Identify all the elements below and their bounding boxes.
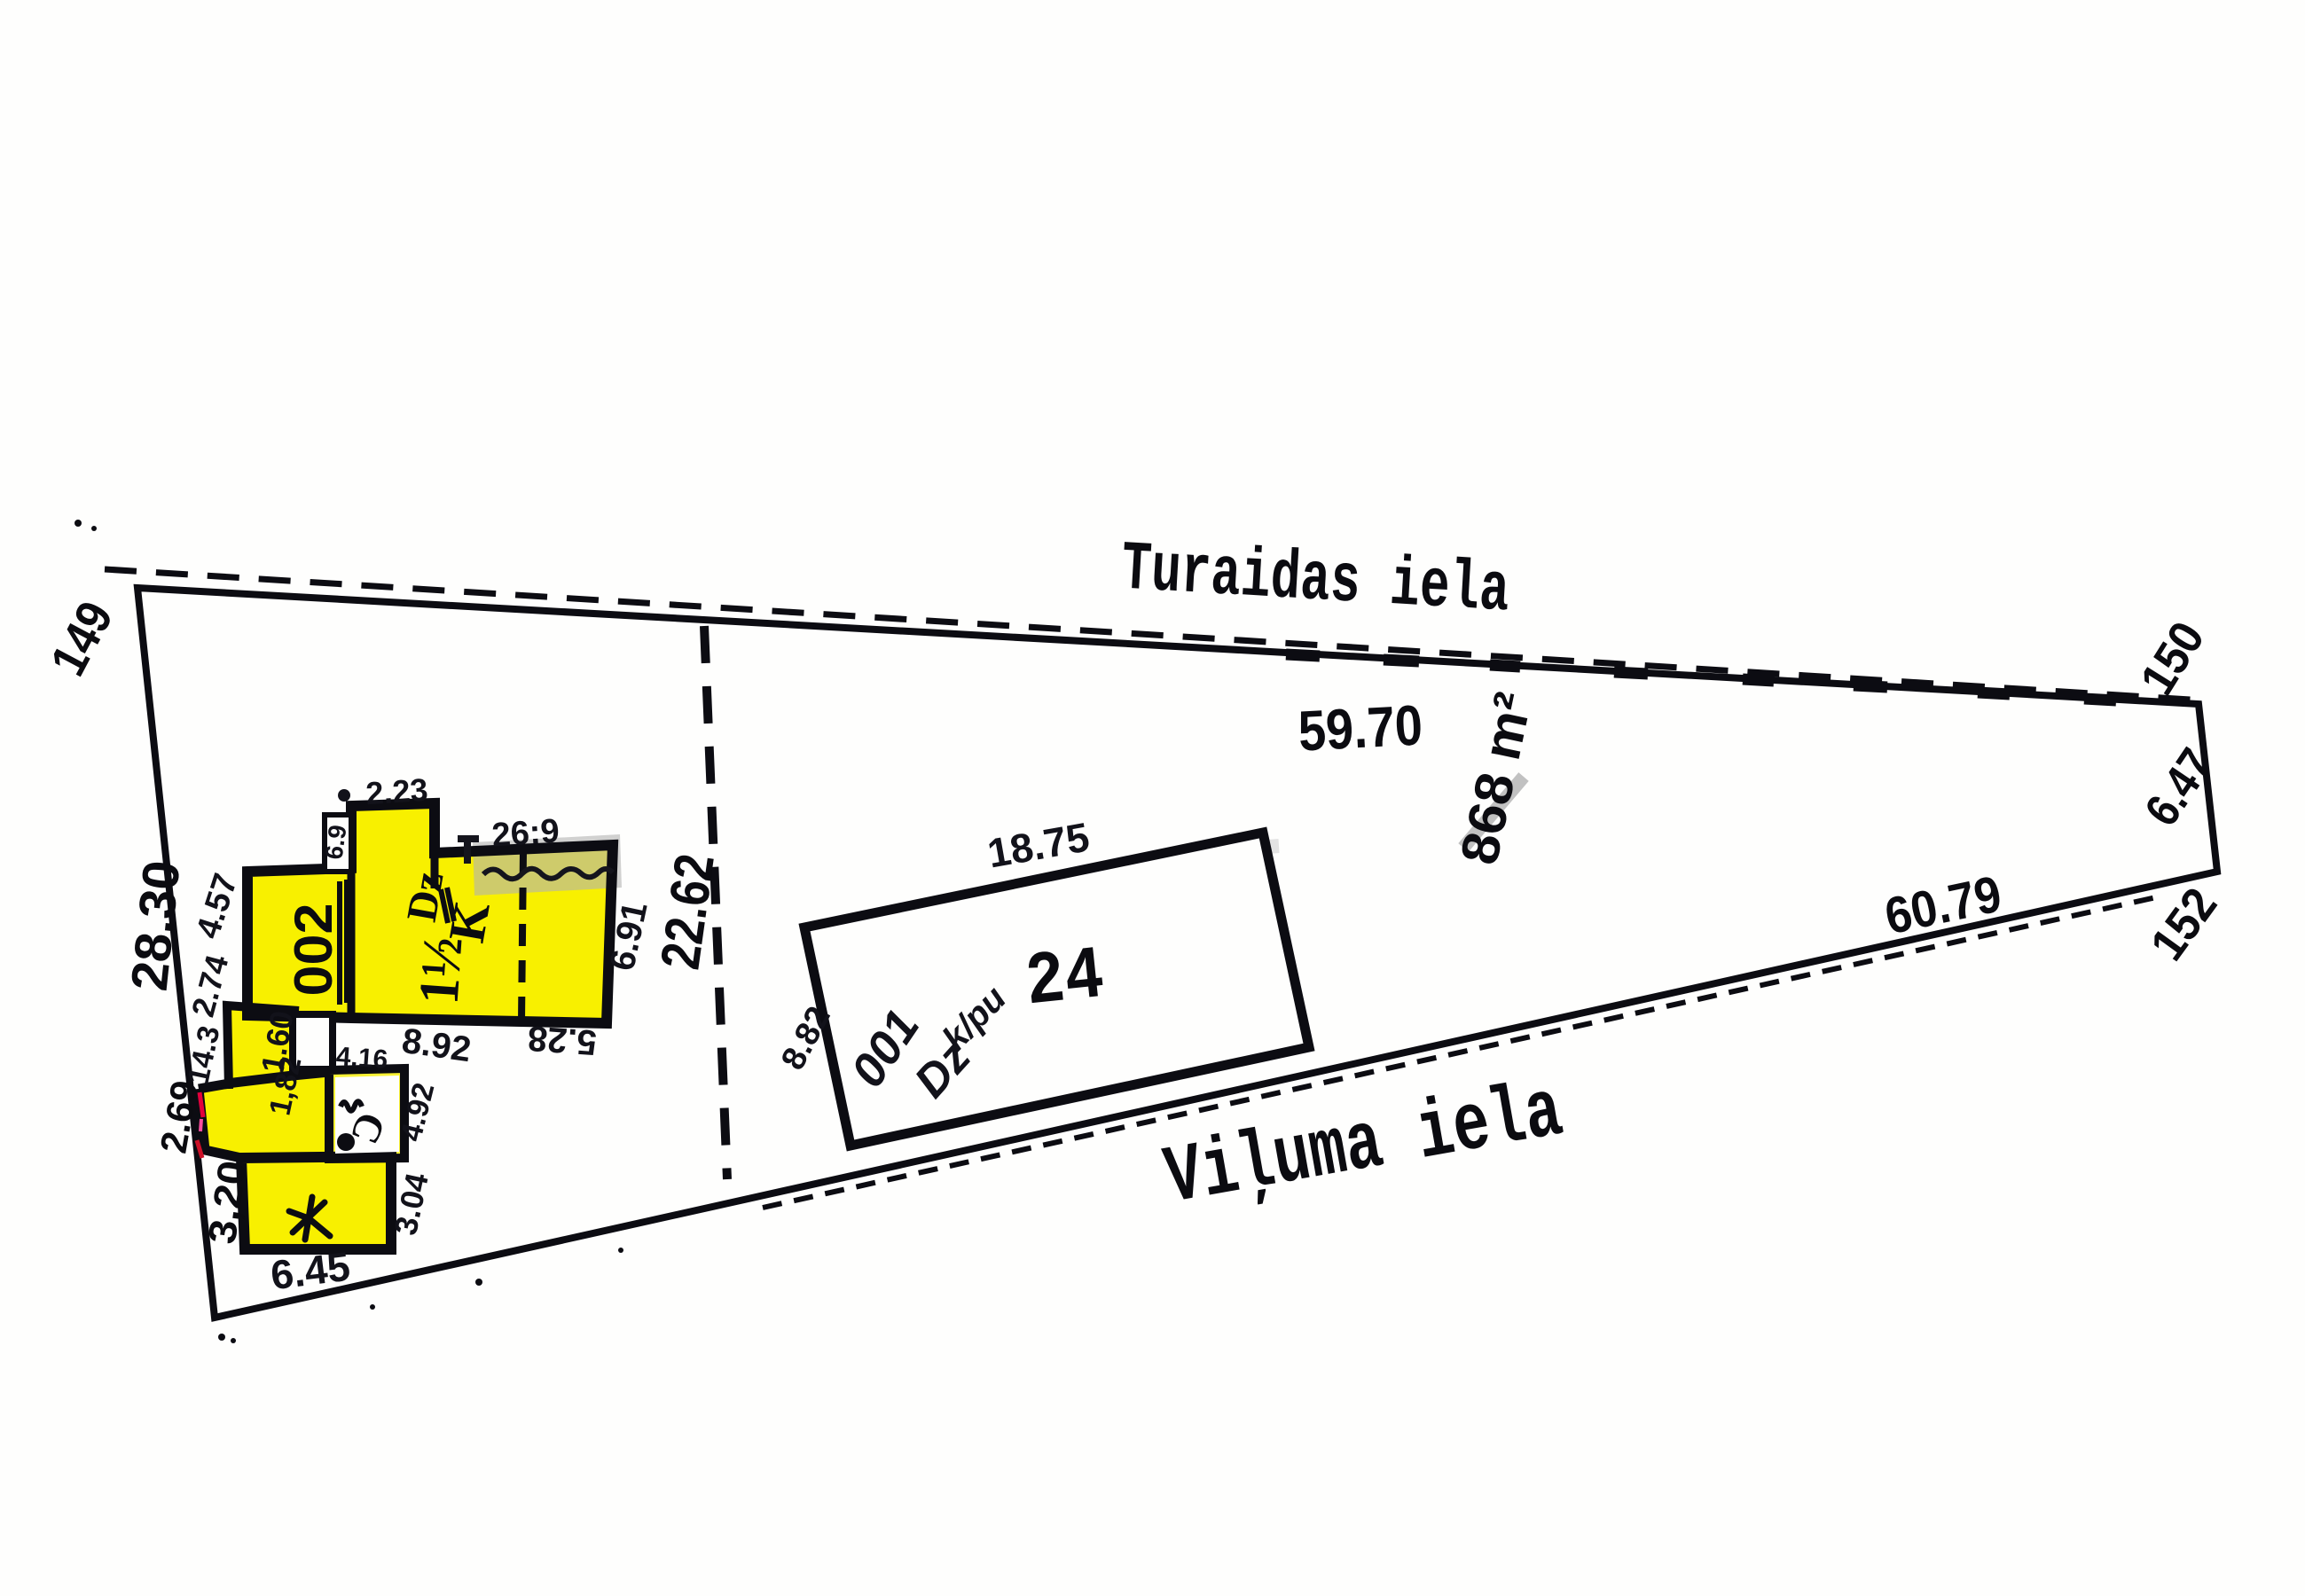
svg-text:4.16: 4.16 <box>335 1042 389 1075</box>
svg-text:24: 24 <box>1022 935 1108 1027</box>
svg-text:26:9: 26:9 <box>490 812 561 854</box>
svg-text:1½: 1½ <box>406 935 474 1006</box>
svg-text:6.45: 6.45 <box>268 1243 352 1299</box>
svg-text:59.70: 59.70 <box>1297 692 1424 763</box>
svg-text:6.9: 6.9 <box>319 823 351 861</box>
svg-text:5.28: 5.28 <box>527 1018 599 1061</box>
svg-text:2.23: 2.23 <box>365 771 429 812</box>
svg-text:002: 002 <box>284 904 343 997</box>
